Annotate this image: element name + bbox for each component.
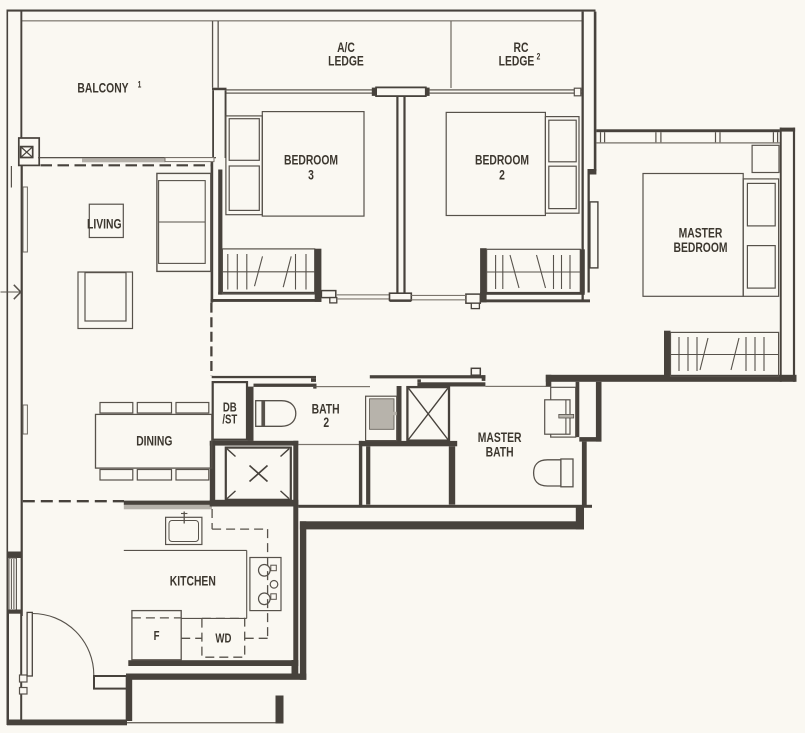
svg-text:LEDGE: LEDGE — [499, 53, 535, 69]
svg-text:BEDROOM: BEDROOM — [284, 152, 338, 168]
svg-text:BATH: BATH — [486, 444, 514, 460]
svg-text:/ST: /ST — [222, 413, 237, 427]
svg-text:LEDGE: LEDGE — [328, 53, 364, 69]
svg-text:F: F — [154, 630, 160, 644]
svg-text:2: 2 — [323, 414, 329, 430]
svg-text:DINING: DINING — [136, 433, 172, 449]
svg-text:BALCONY: BALCONY — [77, 80, 128, 96]
svg-text:LIVING: LIVING — [87, 216, 121, 232]
svg-text:WD: WD — [215, 632, 231, 646]
svg-text:BEDROOM: BEDROOM — [475, 152, 529, 168]
svg-text:2: 2 — [537, 52, 541, 62]
svg-text:3: 3 — [308, 167, 314, 183]
svg-text:2: 2 — [499, 167, 505, 183]
svg-text:BEDROOM: BEDROOM — [673, 239, 727, 255]
svg-text:1: 1 — [138, 80, 142, 90]
svg-text:KITCHEN: KITCHEN — [170, 573, 216, 589]
